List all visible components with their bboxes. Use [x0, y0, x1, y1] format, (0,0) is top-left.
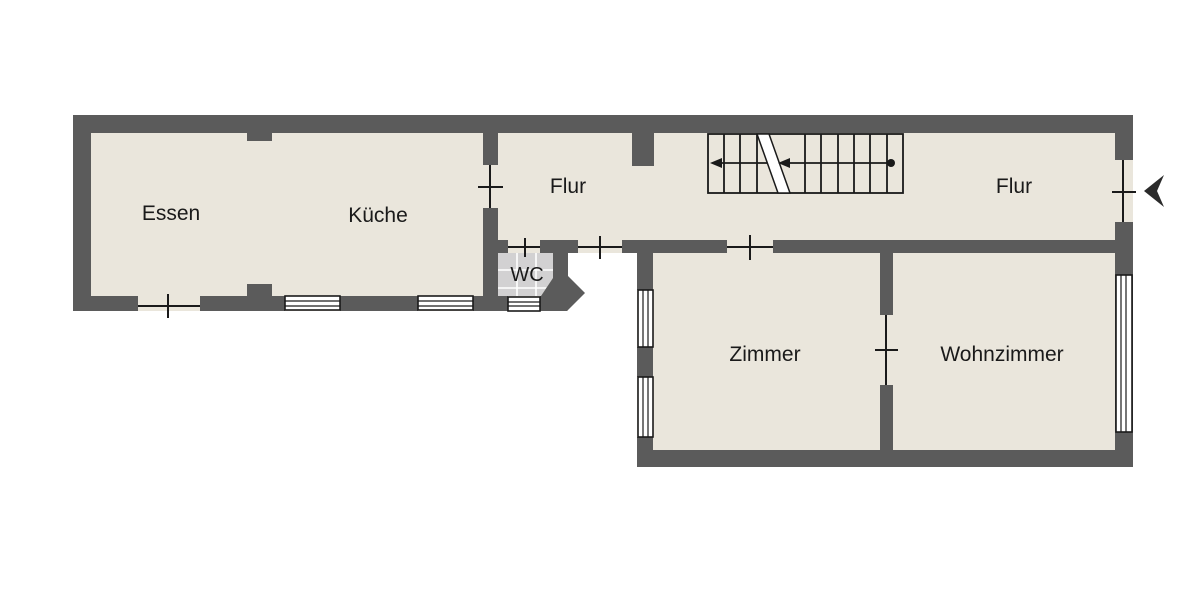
flur-south-wall-segment: [540, 240, 578, 253]
partition-wall-lower: [880, 385, 893, 450]
wing-left-wall-segment: [637, 253, 653, 290]
window: [285, 296, 340, 310]
wing-left-wall-segment: [637, 347, 653, 377]
room-divider-nub-bottom: [247, 284, 272, 296]
bottom-wall-segment: [73, 296, 138, 311]
flur-south-wall-segment: [622, 240, 727, 253]
partition-wall-upper: [880, 253, 893, 315]
room-divider-nub-top: [247, 133, 272, 141]
floor-plan-canvas: Essen Küche Flur WC Flur Zimmer Wohnzimm…: [0, 0, 1200, 600]
flur-divider-stub: [632, 133, 654, 166]
room-label-zimmer: Zimmer: [729, 343, 800, 366]
room-label-flur-left: Flur: [550, 175, 586, 198]
bottom-wall-segment: [473, 296, 508, 311]
room-label-essen: Essen: [142, 202, 200, 225]
bottom-wall-segment: [340, 296, 418, 311]
window: [418, 296, 473, 310]
floor-areas: [73, 115, 1133, 450]
room-label-flur-right: Flur: [996, 175, 1032, 198]
zimmer-window: [638, 290, 653, 347]
kueche-east-wall-upper: [483, 133, 498, 165]
wohnzimmer-window: [1116, 275, 1132, 432]
flur-south-wall-segment: [773, 240, 1115, 253]
room-label-kueche: Küche: [348, 204, 408, 227]
wc-east-wall: [553, 253, 568, 278]
room-label-wohnzimmer: Wohnzimmer: [940, 343, 1063, 366]
zimmer-window: [638, 377, 653, 437]
floor-plan: Essen Küche Flur WC Flur Zimmer Wohnzimm…: [0, 0, 1200, 600]
left-wall: [73, 115, 91, 311]
room-label-wc: WC: [510, 264, 543, 286]
right-wall-upper: [1115, 115, 1133, 160]
top-wall: [73, 115, 1133, 133]
wing-left-wall-segment: [637, 437, 653, 450]
wc-window: [508, 297, 540, 311]
flur-south-wall-segment: [483, 240, 508, 253]
entrance-arrow-icon: [1144, 175, 1164, 207]
bottom-wall-segment: [200, 296, 285, 311]
wing-bottom-wall: [637, 450, 1133, 467]
